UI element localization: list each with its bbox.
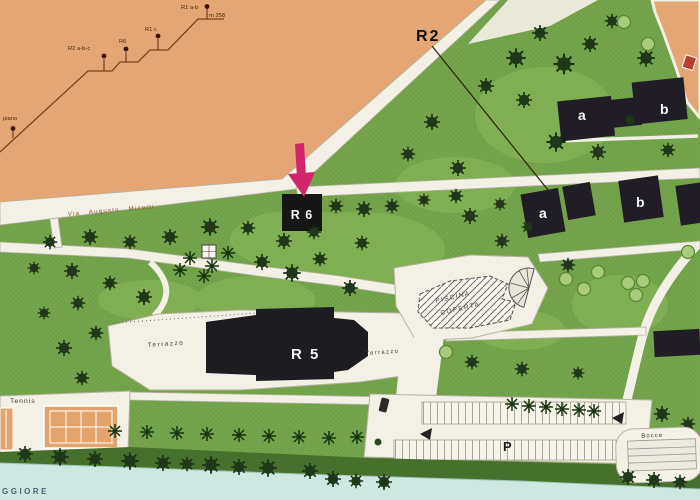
map-canvas: piano R2 a-b-c R6 R1 c R1 a-b m 258	[0, 0, 700, 500]
building-r5-label: R 5	[291, 346, 320, 363]
pool-plaza-connector	[396, 336, 444, 398]
bocce-label: Bocce	[641, 433, 663, 440]
profile-label-r2abc: R2 a-b-c	[68, 46, 90, 52]
profile-label-piano: piano	[3, 116, 17, 122]
building-r6-label: R 6	[291, 208, 313, 222]
profile-label-altitude: m 258	[209, 13, 225, 19]
lake-name-label: GGIORE	[2, 487, 49, 496]
building-east	[653, 329, 700, 357]
parking-label: P	[503, 439, 512, 454]
building-r6: R 6	[282, 194, 322, 231]
profile-label-r1ab: R1 a-b	[181, 5, 198, 11]
resort-site-map: piano R2 a-b-c R6 R1 c R1 a-b m 258	[0, 0, 700, 500]
building-b-label: b	[636, 194, 645, 210]
tennis-label: Tennis	[10, 398, 36, 405]
gazebo	[202, 245, 216, 258]
profile-label-r1c: R1 c	[145, 27, 157, 33]
profile-label-r6: R6	[119, 39, 126, 45]
r2-label: R2	[416, 28, 440, 45]
building-a-label: a	[539, 205, 547, 221]
building-a-label: a	[578, 107, 586, 123]
building-b-label: b	[660, 101, 669, 117]
